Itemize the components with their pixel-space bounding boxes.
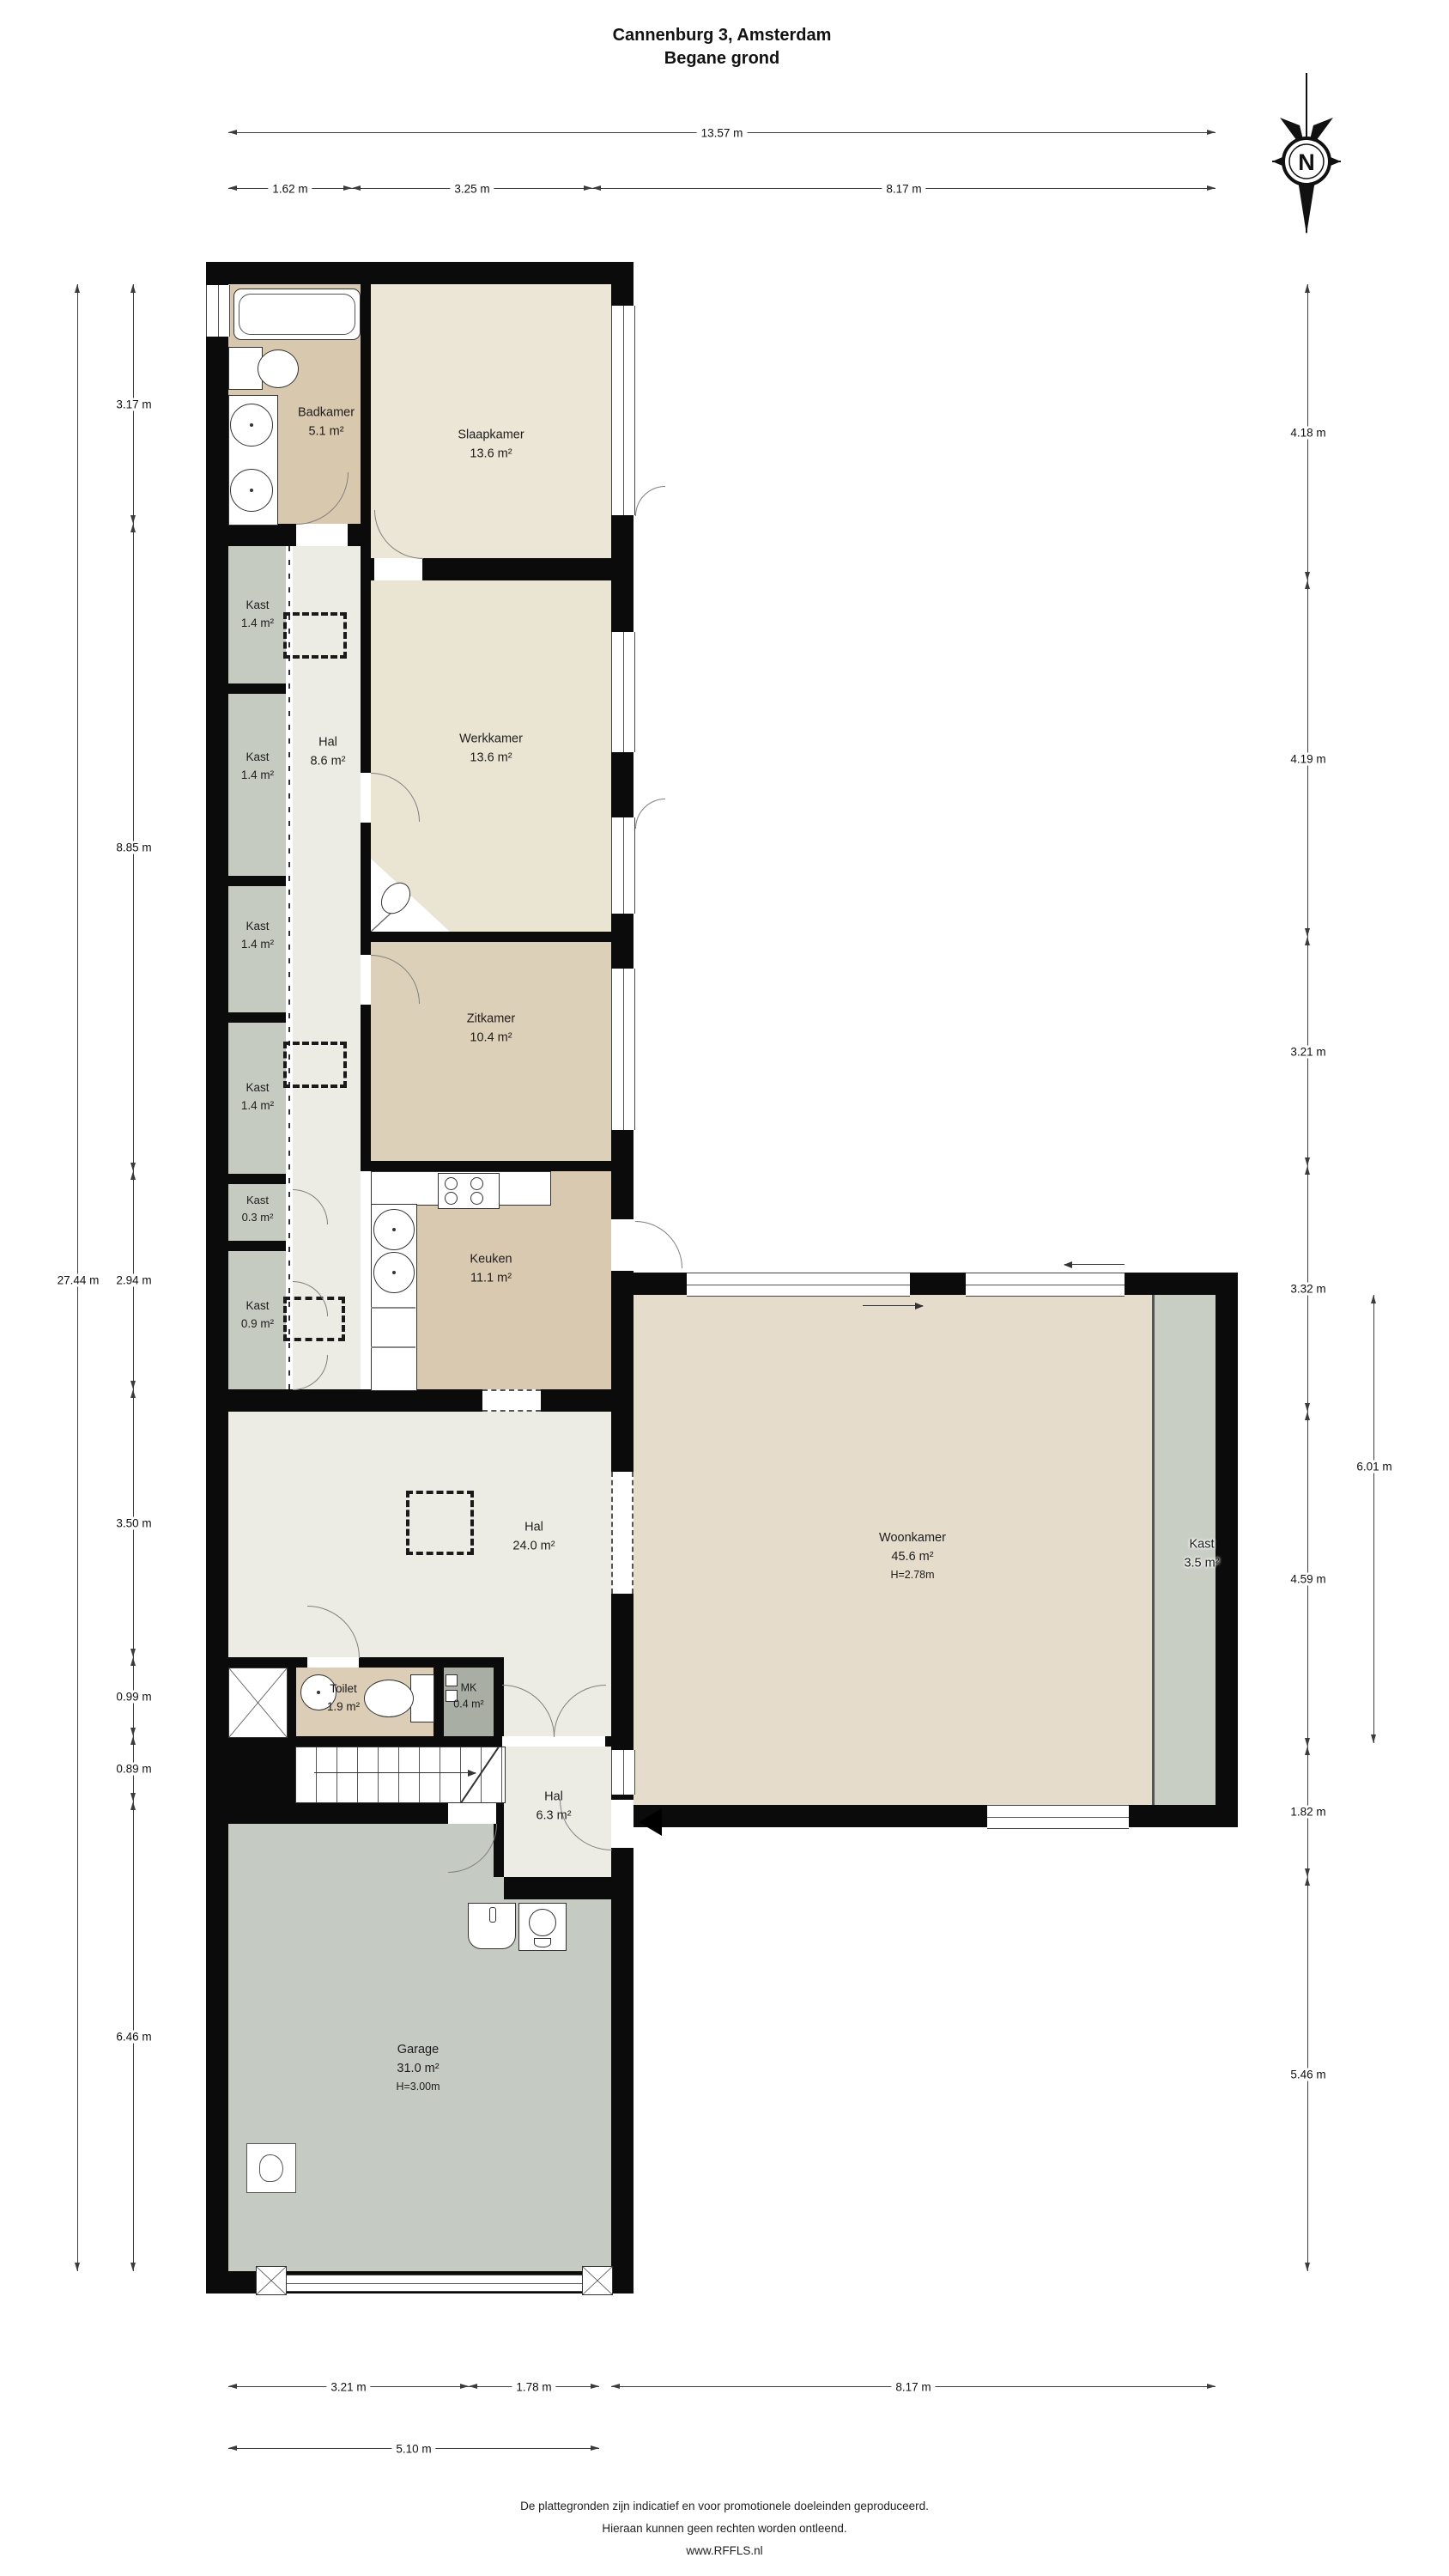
- footer-website: www.RFFLS.nl: [0, 2540, 1449, 2562]
- front-door-opening: [611, 1800, 634, 1848]
- window: [611, 1750, 635, 1795]
- compass-icon: N: [1255, 73, 1358, 236]
- dim-bottom-seg-2: 1.78 m: [469, 2386, 599, 2387]
- dim-label: 4.19 m: [1286, 752, 1330, 765]
- dim-label: 3.25 m: [450, 183, 494, 196]
- washbasin: [230, 469, 273, 512]
- title-floor: Begane grond: [228, 47, 1216, 70]
- room-name: Kast: [246, 597, 269, 615]
- room-area: 0.9 m²: [241, 1315, 274, 1334]
- garage-door-post: [256, 2266, 287, 2295]
- dim-label: 8.85 m: [112, 841, 155, 854]
- dim-woonkamer-inner: 6.01 m: [1373, 1295, 1374, 1743]
- floor-hal-corridor: [293, 546, 361, 1389]
- dim-left-seg-6: 0.89 m: [133, 1736, 134, 1801]
- room-name: Hal: [318, 733, 337, 752]
- dim-label: 0.99 m: [112, 1691, 155, 1704]
- room-label-hal-corridor: Hal 8.6 m²: [310, 733, 345, 772]
- wall: [206, 1012, 293, 1023]
- dim-left-seg-1: 3.17 m: [133, 284, 134, 524]
- room-area: 24.0 m²: [512, 1537, 555, 1556]
- toilet-bowl: [258, 349, 299, 388]
- wall: [611, 1805, 1238, 1827]
- wall: [611, 1899, 634, 2293]
- door-opening-slaapkamer: [374, 558, 422, 580]
- room-name: Garage: [397, 2040, 439, 2059]
- wall: [206, 1174, 293, 1184]
- dim-top-seg-2: 3.25 m: [352, 188, 592, 189]
- dim-right-seg-7: 5.46 m: [1307, 1877, 1308, 2271]
- wall: [206, 262, 634, 284]
- room-area: 1.9 m²: [327, 1698, 360, 1716]
- shaft-cross-box: [228, 1668, 288, 1738]
- wall: [206, 262, 228, 2293]
- dim-label: 13.57 m: [697, 127, 748, 140]
- room-name: Woonkamer: [879, 1528, 946, 1547]
- bathtub-inner: [239, 294, 355, 335]
- dim-label: 8.17 m: [882, 183, 925, 196]
- bathtub: [233, 289, 361, 340]
- room-name: Toilet: [330, 1680, 357, 1698]
- door-opening-toilet: [307, 1657, 359, 1668]
- dim-label: 1.82 m: [1286, 1806, 1330, 1819]
- room-area: 1.4 m²: [241, 1097, 274, 1115]
- dim-label: 6.46 m: [112, 2030, 155, 2043]
- dim-label: 1.62 m: [268, 183, 312, 196]
- wall: [206, 1241, 293, 1251]
- room-label-garage: Garage 31.0 m² H=3.00m: [396, 2040, 440, 2095]
- room-name: Slaapkamer: [458, 426, 524, 445]
- casement-arc: [635, 486, 665, 516]
- dim-label: 1.78 m: [512, 2381, 555, 2394]
- disclaimer-line: De plattegronden zijn indicatief en voor…: [0, 2495, 1449, 2518]
- room-label-kast-5: Kast 0.3 m²: [242, 1192, 274, 1226]
- dim-label: 0.89 m: [112, 1763, 155, 1776]
- dim-right-seg-5: 4.59 m: [1307, 1412, 1308, 1747]
- dim-label: 3.21 m: [326, 2381, 370, 2394]
- toilet-bowl: [364, 1680, 414, 1717]
- room-name: Zitkamer: [467, 1010, 515, 1029]
- dim-right-seg-3: 3.21 m: [1307, 937, 1308, 1166]
- room-label-kast-3: Kast 1.4 m²: [241, 918, 274, 954]
- door-opening-badkamer: [296, 524, 348, 546]
- window: [611, 306, 635, 515]
- room-label-hal-entree: Hal 6.3 m²: [536, 1788, 571, 1826]
- dim-right-seg-1: 4.18 m: [1307, 284, 1308, 580]
- page-title: Cannenburg 3, Amsterdam Begane grond: [228, 24, 1216, 70]
- casement-arc: [635, 799, 665, 829]
- door-opening-zitkamer: [361, 955, 371, 1005]
- washbasin: [230, 404, 273, 447]
- toilet-tank: [410, 1674, 434, 1722]
- window: [611, 817, 635, 914]
- room-area: 1.4 m²: [241, 615, 274, 633]
- room-name: Werkkamer: [459, 730, 523, 749]
- room-label-hal-centraal: Hal 24.0 m²: [512, 1518, 555, 1557]
- room-label-woonkamer: Woonkamer 45.6 m² H=2.78m: [879, 1528, 946, 1583]
- room-area: 45.6 m²: [891, 1547, 933, 1566]
- dim-left-seg-5: 0.99 m: [133, 1657, 134, 1736]
- wall: [361, 546, 371, 1171]
- kitchen-sink: [373, 1252, 415, 1293]
- room-area: 3.5 m²: [1184, 1554, 1219, 1573]
- room-label-badkamer: Badkamer 5.1 m²: [298, 404, 355, 442]
- room-area: 6.3 m²: [536, 1807, 571, 1826]
- dim-label: 3.21 m: [1286, 1045, 1330, 1058]
- room-name: Badkamer: [298, 404, 355, 422]
- room-label-zitkamer: Zitkamer 10.4 m²: [467, 1010, 515, 1048]
- room-area: 13.6 m²: [470, 749, 512, 768]
- room-name: Kast: [1189, 1535, 1214, 1554]
- room-height: H=2.78m: [890, 1567, 934, 1583]
- door-opening-keuken: [611, 1219, 634, 1271]
- washing-machine-drum: [529, 1909, 556, 1936]
- window: [987, 1805, 1129, 1829]
- room-area: 0.4 m²: [453, 1697, 483, 1713]
- cabinet-divider: [371, 1346, 415, 1348]
- window: [611, 969, 635, 1130]
- dim-label: 4.59 m: [1286, 1573, 1330, 1586]
- dashed-opening-woonkamer: [611, 1472, 634, 1594]
- dim-left-total: 27.44 m: [77, 284, 78, 2271]
- floorplan-canvas: Cannenburg 3, Amsterdam Begane grond N: [0, 0, 1449, 2576]
- dim-top-total: 13.57 m: [228, 132, 1216, 133]
- room-name: Kast: [246, 749, 269, 767]
- kast-sliding-track: [286, 546, 293, 1389]
- kitchen-sink: [373, 1209, 415, 1250]
- dim-left-seg-4: 3.50 m: [133, 1389, 134, 1657]
- window: [206, 285, 230, 337]
- room-label-kast-1: Kast 1.4 m²: [241, 597, 274, 633]
- boiler-glyph: [259, 2154, 283, 2182]
- disclaimer-line: Hieraan kunnen geen rechten worden ontle…: [0, 2518, 1449, 2540]
- garage-sink: [468, 1903, 516, 1949]
- room-label-kast-2: Kast 1.4 m²: [241, 749, 274, 785]
- room-area: 8.6 m²: [310, 752, 345, 771]
- washing-machine-basket: [534, 1938, 551, 1947]
- room-name: Hal: [544, 1788, 563, 1807]
- dim-label: 3.32 m: [1286, 1283, 1330, 1296]
- room-label-mk: MK 0.4 m²: [453, 1680, 483, 1714]
- room-name: Kast: [246, 918, 269, 936]
- room-label-kast-6: Kast 0.9 m²: [241, 1297, 274, 1334]
- dim-label: 5.10 m: [391, 2443, 435, 2456]
- room-area: 10.4 m²: [470, 1029, 512, 1048]
- room-area: 5.1 m²: [308, 422, 343, 441]
- wall: [228, 1657, 504, 1668]
- stairs-direction-arrow: [314, 1772, 476, 1773]
- entrance-arrow-icon: [639, 1808, 662, 1836]
- room-area: 31.0 m²: [397, 2059, 439, 2078]
- room-area: 0.3 m²: [242, 1209, 274, 1226]
- title-address: Cannenburg 3, Amsterdam: [228, 24, 1216, 47]
- wall: [206, 876, 293, 886]
- wall: [206, 683, 293, 694]
- garage-sink-tap: [489, 1907, 496, 1923]
- room-height: H=3.00m: [396, 2079, 440, 2095]
- room-label-keuken: Keuken 11.1 m²: [470, 1250, 512, 1289]
- dim-label: 27.44 m: [53, 1274, 104, 1287]
- room-label-werkkamer: Werkkamer 13.6 m²: [459, 730, 523, 769]
- dim-left-seg-7: 6.46 m: [133, 1801, 134, 2271]
- room-label-kast-woonkamer: Kast 3.5 m²: [1184, 1535, 1219, 1574]
- dim-left-seg-2: 8.85 m: [133, 524, 134, 1171]
- dim-label: 3.17 m: [112, 398, 155, 410]
- dim-label: 4.18 m: [1286, 426, 1330, 439]
- wall: [504, 1877, 634, 1899]
- wall: [371, 1161, 611, 1171]
- disclaimer-footer: De plattegronden zijn indicatief en voor…: [0, 2495, 1449, 2562]
- stove-burner: [445, 1192, 458, 1205]
- garage-door-post: [582, 2266, 613, 2295]
- room-label-toilet: Toilet 1.9 m²: [327, 1680, 360, 1716]
- door-arc: [635, 1221, 682, 1268]
- dim-label: 6.01 m: [1352, 1461, 1396, 1473]
- dim-top-seg-1: 1.62 m: [228, 188, 352, 189]
- room-name: Kast: [246, 1079, 269, 1097]
- room-name: Hal: [524, 1518, 543, 1537]
- dim-label: 3.50 m: [112, 1517, 155, 1530]
- dim-right-seg-6: 1.82 m: [1307, 1747, 1308, 1877]
- wall: [206, 1389, 611, 1412]
- wall: [371, 932, 611, 942]
- room-area: 11.1 m²: [470, 1269, 512, 1288]
- room-name: Keuken: [470, 1250, 512, 1269]
- room-name: MK: [461, 1680, 477, 1697]
- dim-top-seg-3: 8.17 m: [592, 188, 1216, 189]
- stove-burner: [470, 1192, 483, 1205]
- room-area: 1.4 m²: [241, 936, 274, 954]
- dim-bottom-total: 5.10 m: [228, 2448, 599, 2449]
- room-area: 1.4 m²: [241, 767, 274, 785]
- compass-north-letter: N: [1298, 149, 1315, 175]
- floor-kast-column: [228, 546, 286, 1389]
- dim-left-seg-3: 2.94 m: [133, 1171, 134, 1389]
- window: [687, 1273, 910, 1297]
- dim-bottom-seg-1: 3.21 m: [228, 2386, 469, 2387]
- dim-right-seg-2: 4.19 m: [1307, 580, 1308, 937]
- wall: [433, 1668, 444, 1736]
- dim-bottom-seg-3: 8.17 m: [611, 2386, 1216, 2387]
- door-opening-werkkamer: [361, 773, 371, 823]
- room-area: 13.6 m²: [470, 445, 512, 464]
- dim-right-seg-4: 3.32 m: [1307, 1166, 1308, 1412]
- wall-kast-divider: [1152, 1295, 1155, 1805]
- room-name: Kast: [246, 1297, 269, 1315]
- door-opening-garage: [448, 1801, 496, 1824]
- window: [966, 1273, 1125, 1297]
- cabinet-divider: [371, 1307, 415, 1309]
- window: [611, 632, 635, 752]
- skylight-dashed-box: [283, 612, 347, 659]
- stove-burner: [445, 1177, 458, 1190]
- double-door-opening: [502, 1736, 605, 1747]
- skylight-dashed-box: [283, 1042, 347, 1088]
- garage-door: [283, 2275, 584, 2292]
- room-label-kast-4: Kast 1.4 m²: [241, 1079, 274, 1115]
- skylight-dashed-box: [406, 1491, 474, 1555]
- wall: [361, 284, 371, 524]
- dim-label: 8.17 m: [891, 2381, 935, 2394]
- stove-burner: [470, 1177, 483, 1190]
- pass-through-opening: [482, 1389, 541, 1412]
- room-name: Kast: [246, 1192, 269, 1209]
- dim-label: 2.94 m: [112, 1274, 155, 1287]
- boiler-unit: [246, 2143, 296, 2193]
- sliding-door-arrow: [1064, 1264, 1125, 1265]
- washing-machine: [518, 1903, 567, 1951]
- sliding-door-arrow: [863, 1305, 923, 1306]
- room-label-slaapkamer: Slaapkamer 13.6 m²: [458, 426, 524, 465]
- dim-label: 5.46 m: [1286, 2068, 1330, 2081]
